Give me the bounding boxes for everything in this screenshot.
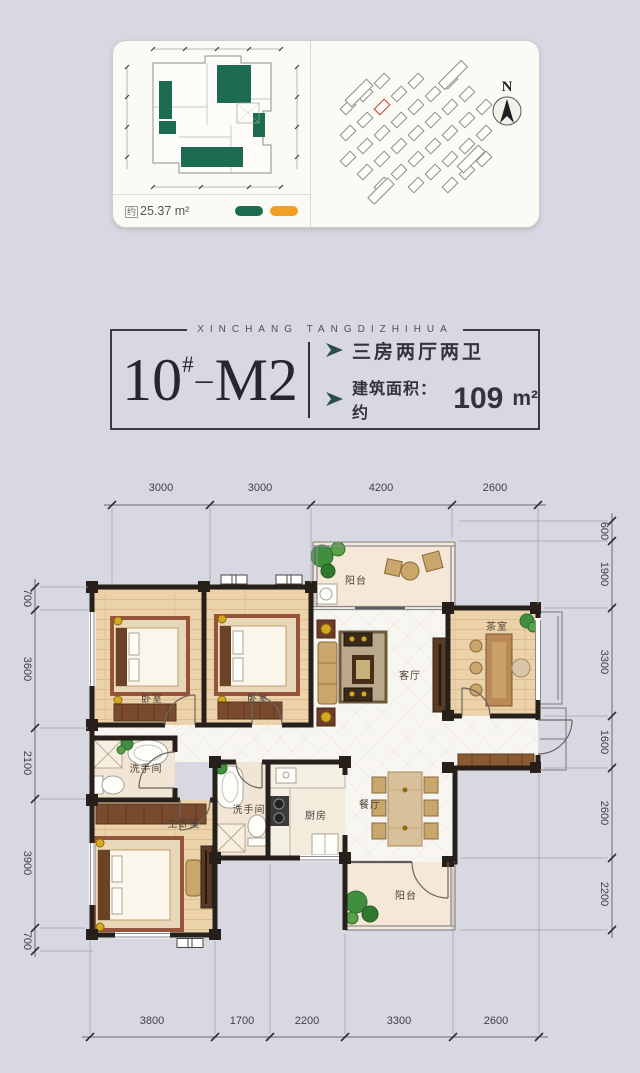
dim-right-2: 1900 — [598, 562, 610, 586]
dim-top-2: 3000 — [248, 482, 272, 494]
arrow-bullet-icon — [326, 392, 343, 406]
spec-rooms-row: 三房两厅两卫 — [326, 337, 538, 364]
legend-pill-green — [235, 206, 263, 216]
dim-bottom-2: 1700 — [230, 1015, 254, 1027]
site-plan: N — [311, 41, 540, 227]
room-label-balcony-top: 阳台 — [345, 574, 367, 587]
dim-right-5: 2600 — [598, 801, 610, 825]
dim-right-3: 3300 — [598, 650, 610, 674]
dim-right-6: 2200 — [598, 882, 610, 906]
dim-bottom-3: 2200 — [295, 1015, 319, 1027]
page-background: { "card": { "area_prefix": "约", "area_va… — [0, 0, 640, 1073]
floor-plan: 3000 3000 4200 2600 3800 1700 2200 3300 … — [0, 450, 640, 1073]
room-label-bedroom-2: 卧室 — [247, 692, 269, 705]
room-label-bath-2: 洗手间 — [233, 803, 266, 816]
north-compass: N — [493, 79, 521, 125]
dim-left-4: 3900 — [21, 851, 33, 875]
dim-bottom-5: 2600 — [484, 1015, 508, 1027]
room-label-kitchen: 厨房 — [305, 809, 327, 822]
mini-floorplan-legend: 约25.37 m² — [113, 194, 310, 227]
highlighted-building — [374, 99, 390, 115]
dim-right-4: 1600 — [598, 730, 610, 754]
title-block: XINCHANG TANGDIZHIHUA 10#–M2 三房两厅两卫 建筑面积… — [110, 331, 540, 430]
room-label-living: 客厅 — [399, 669, 421, 682]
room-label-bedroom-1: 卧室 — [141, 692, 163, 705]
dim-top-1: 3000 — [149, 482, 173, 494]
arrow-bullet-icon — [326, 343, 343, 357]
spec-rooms-label: 三房两厅两卫 — [352, 337, 484, 364]
spec-area-unit: m² — [512, 387, 538, 411]
dim-left-3: 2100 — [21, 751, 33, 775]
divider-line — [110, 329, 187, 331]
room-label-bath-1: 洗手间 — [130, 762, 163, 775]
room-label-master-bedroom: 主卧室 — [168, 817, 201, 830]
room-label-balcony-bottom: 阳台 — [395, 889, 417, 902]
project-name: XINCHANG TANGDIZHIHUA — [197, 324, 453, 335]
mini-area-label: 约25.37 m² — [125, 204, 189, 218]
dim-bottom-4: 3300 — [387, 1015, 411, 1027]
dim-top-3: 4200 — [369, 482, 393, 494]
divider-line — [463, 329, 540, 331]
unit-overview-card: 约25.37 m² N — [112, 40, 540, 228]
spec-area-value: 109 — [453, 382, 503, 416]
spec-area-row: 建筑面积：约109m² — [326, 375, 538, 423]
siteplan-panel: N — [311, 41, 540, 227]
mini-floorplan-panel: 约25.37 m² — [113, 41, 311, 227]
dim-bottom-1: 3800 — [140, 1015, 164, 1027]
dim-left-2: 3600 — [21, 657, 33, 681]
north-label: N — [502, 79, 513, 95]
project-name-row: XINCHANG TANGDIZHIHUA — [110, 324, 540, 335]
dim-left-5: 700 — [21, 932, 33, 950]
spec-area-prefix: 建筑面积：约 — [352, 375, 444, 423]
dim-left-1: 700 — [21, 589, 33, 607]
legend-pill-orange — [270, 206, 298, 216]
mini-floorplan — [113, 41, 311, 194]
unit-title: 10#–M2 — [112, 350, 308, 410]
room-label-tea-room: 茶室 — [486, 620, 508, 633]
dim-right-1: 600 — [598, 522, 610, 540]
dim-top-4: 2600 — [483, 482, 507, 494]
room-label-dining: 餐厅 — [359, 798, 381, 811]
